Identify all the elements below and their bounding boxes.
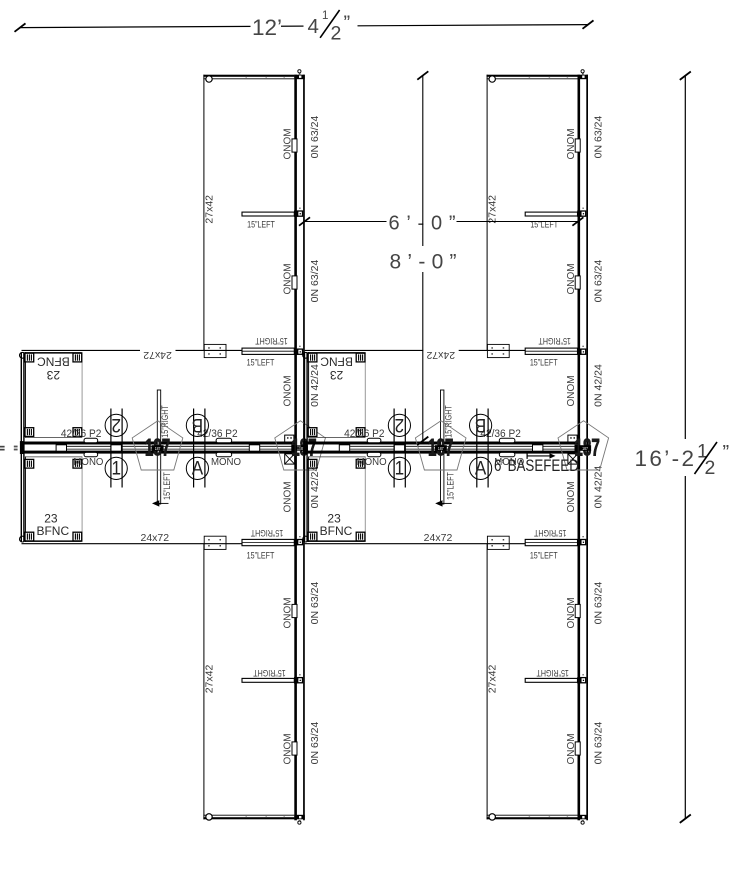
svg-text:23: 23 <box>330 368 344 382</box>
svg-text:15”RIGHT: 15”RIGHT <box>253 668 286 678</box>
svg-text:15”LEFT: 15”LEFT <box>530 551 558 561</box>
svg-text:A: A <box>192 458 204 479</box>
svg-text:187: 187 <box>155 445 161 451</box>
svg-text:12’: 12’ <box>252 15 282 40</box>
svg-text:15”RIGHT: 15”RIGHT <box>536 668 569 678</box>
svg-text:15”LEFT: 15”LEFT <box>247 358 275 368</box>
svg-text:15”RIGHT: 15”RIGHT <box>161 405 171 438</box>
svg-text:16’-2: 16’-2 <box>635 446 695 471</box>
svg-text:4: 4 <box>308 15 319 38</box>
svg-text:1: 1 <box>322 10 328 22</box>
svg-text:BFNC: BFNC <box>320 524 353 538</box>
svg-text:2: 2 <box>111 415 121 436</box>
svg-text:0N 63/24: 0N 63/24 <box>592 722 604 765</box>
svg-text:0N 63/24: 0N 63/24 <box>592 260 604 303</box>
svg-text:2: 2 <box>705 457 716 479</box>
svg-text:B: B <box>475 415 486 436</box>
svg-text:BFNC: BFNC <box>36 524 69 538</box>
svg-text:15”RIGHT: 15”RIGHT <box>255 336 288 346</box>
svg-text:1: 1 <box>111 458 121 479</box>
svg-text:15”RIGHT: 15”RIGHT <box>538 336 571 346</box>
svg-text:MONO: MONO <box>357 457 387 468</box>
svg-text:BFNC: BFNC <box>320 354 353 368</box>
svg-text:1: 1 <box>395 458 405 479</box>
svg-text:0N 63/24: 0N 63/24 <box>592 582 604 625</box>
svg-text:15”LEFT: 15”LEFT <box>247 220 275 230</box>
svg-text:0N 63/24: 0N 63/24 <box>309 722 321 765</box>
svg-text:15”RIGHT: 15”RIGHT <box>534 528 567 538</box>
svg-text:24x72: 24x72 <box>426 349 455 361</box>
svg-text:0N 63/24: 0N 63/24 <box>309 116 321 159</box>
svg-text:”: ” <box>344 13 351 35</box>
svg-text:24x72: 24x72 <box>424 532 453 544</box>
svg-text:23: 23 <box>327 511 341 525</box>
svg-text:A: A <box>475 458 487 479</box>
svg-text:2: 2 <box>395 415 405 436</box>
svg-text:0N 42/24: 0N 42/24 <box>309 466 321 509</box>
svg-text:24x72: 24x72 <box>140 532 169 544</box>
svg-text:0N 63/24: 0N 63/24 <box>309 260 321 303</box>
svg-text:B: B <box>192 415 203 436</box>
svg-text:0N 42/24: 0N 42/24 <box>592 466 604 509</box>
svg-text:ONOM: ONOM <box>282 375 293 406</box>
svg-text:15”LEFT: 15”LEFT <box>530 358 558 368</box>
svg-text:MONO: MONO <box>73 457 103 468</box>
svg-text:ONOM: ONOM <box>566 375 577 406</box>
svg-text:BFNC: BFNC <box>37 354 70 368</box>
svg-text:15”RIGHT: 15”RIGHT <box>251 528 284 538</box>
svg-text:23: 23 <box>44 511 58 525</box>
svg-text:”: ” <box>723 442 730 464</box>
svg-text:187: 187 <box>438 445 444 451</box>
svg-text:0N 42/24: 0N 42/24 <box>592 364 604 407</box>
svg-text:0N 63/24: 0N 63/24 <box>592 116 604 159</box>
svg-text:42/36 P2: 42/36 P2 <box>344 428 385 440</box>
svg-text:27x42: 27x42 <box>487 665 499 694</box>
svg-text:24x72: 24x72 <box>143 349 172 361</box>
svg-text:ONOM: ONOM <box>566 481 577 512</box>
svg-text:MONO: MONO <box>211 457 241 468</box>
svg-text:42/36 P2: 42/36 P2 <box>61 428 102 440</box>
svg-text:15”LEFT: 15”LEFT <box>163 472 173 500</box>
svg-text:15”LEFT: 15”LEFT <box>247 551 275 561</box>
svg-text:15”RIGHT: 15”RIGHT <box>444 405 454 438</box>
svg-text:ONOM: ONOM <box>282 481 293 512</box>
svg-text:0N 42/24: 0N 42/24 <box>309 364 321 407</box>
svg-text:27x42: 27x42 <box>203 195 215 224</box>
svg-text:0N 63/24: 0N 63/24 <box>309 582 321 625</box>
svg-text:15”LEFT: 15”LEFT <box>446 472 456 500</box>
svg-text:27x42: 27x42 <box>203 665 215 694</box>
svg-text:6’ BASEFEED: 6’ BASEFEED <box>494 457 579 476</box>
svg-text:23: 23 <box>46 368 60 382</box>
svg-text:27x42: 27x42 <box>487 195 499 224</box>
svg-text:187: 187 <box>582 445 588 451</box>
svg-text:2: 2 <box>331 23 342 45</box>
